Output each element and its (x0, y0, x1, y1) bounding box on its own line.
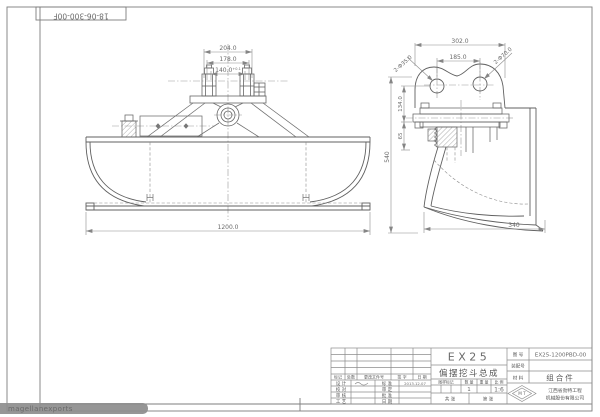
drawing-title: 偏摆挖斗总成 (439, 368, 499, 379)
watermark-text: magellanexports (8, 405, 73, 413)
sign-role-process: 工 艺 (336, 399, 347, 405)
spec-scale: 1:6 (494, 387, 504, 394)
sign-role2-approve: 批 准 (382, 392, 393, 399)
sign-role-check: 校 对 (336, 386, 347, 393)
cad-drawing-canvas: 18-06-300-00F (0, 0, 600, 417)
dim-178: 178.0 (219, 56, 236, 63)
rev-header-count: 处数 (347, 374, 355, 380)
material-value: 组合件 (546, 373, 575, 383)
dim-185: 185.0 (449, 54, 466, 61)
assembly-no-label: 装配号 (511, 363, 525, 370)
dim-2xd35: 2-Φ35.0 (393, 54, 414, 74)
sign-role2-daterow: 日 期 (382, 399, 393, 405)
sheet-frame (7, 7, 592, 411)
sign-role2-review: 审 定 (382, 386, 393, 393)
title-block: 标记 处数 更改文件号 签 字 日 期 设 计 标 准 2013.12.07 校… (331, 348, 592, 405)
spec-header-scale: 比 例 (495, 380, 504, 385)
company-logo-text: M T (518, 391, 526, 396)
spec-header-weight: 重 量 (480, 380, 489, 385)
clamp-bolt (120, 115, 138, 137)
company-name-line2: 机械股份有限公司 (546, 395, 585, 402)
drawing-no-value: EX25-1200PBD-00 (535, 353, 587, 359)
rev-header-sign: 签 字 (397, 374, 406, 380)
dim-540: 540 (384, 151, 391, 163)
rev-header-docno: 更改文件号 (364, 374, 384, 380)
front-view-drawing: 204.0 178.0 140.0+0.1 1200.0 (86, 44, 370, 235)
model-label: EX25 (448, 351, 490, 364)
doc-code-label: 18-06-300-00F (53, 12, 108, 21)
dim-204: 204.0 (219, 45, 236, 52)
sign-role2-standard: 标 准 (382, 380, 393, 387)
spec-header-mark: 图样标记 (438, 380, 453, 385)
drawing-no-label: 图 号 (513, 352, 524, 358)
sheets-total: 共 张 (445, 396, 456, 403)
rev-header-mark: 标记 (334, 374, 342, 380)
watermark-chip: magellanexports (0, 403, 148, 414)
dim-340: 340 (508, 222, 520, 229)
spec-header-qty: 数 量 (465, 380, 474, 385)
side-view-drawing: 302.0 185.0 2-Φ70.0 2-Φ35.0 134.0 65 540… (384, 38, 545, 233)
sheet-number: 第 张 (483, 396, 494, 403)
bucket-side-outline (424, 108, 543, 231)
signature-scribble (355, 383, 368, 386)
spec-quantity: 1 (467, 387, 471, 393)
dim-65: 65 (398, 132, 404, 139)
dim-134: 134.0 (398, 96, 404, 112)
sign-role-design: 设 计 (336, 380, 347, 387)
drawing-sheet: 18-06-300-00F (0, 0, 600, 417)
sign-role-audit: 审 核 (336, 392, 347, 399)
dim-1200: 1200.0 (218, 224, 239, 231)
swing-gear (428, 127, 457, 147)
sign-date-design: 2013.12.07 (404, 381, 426, 386)
dim-140: 140.0+0.1 (215, 67, 241, 74)
rev-header-date: 日 期 (417, 374, 426, 380)
dim-302: 302.0 (451, 38, 468, 45)
dim-2xd70: 2-Φ70.0 (493, 46, 514, 66)
company-name-line1: 江西省劲特工程 (548, 387, 582, 394)
material-label: 材 料 (513, 375, 524, 382)
